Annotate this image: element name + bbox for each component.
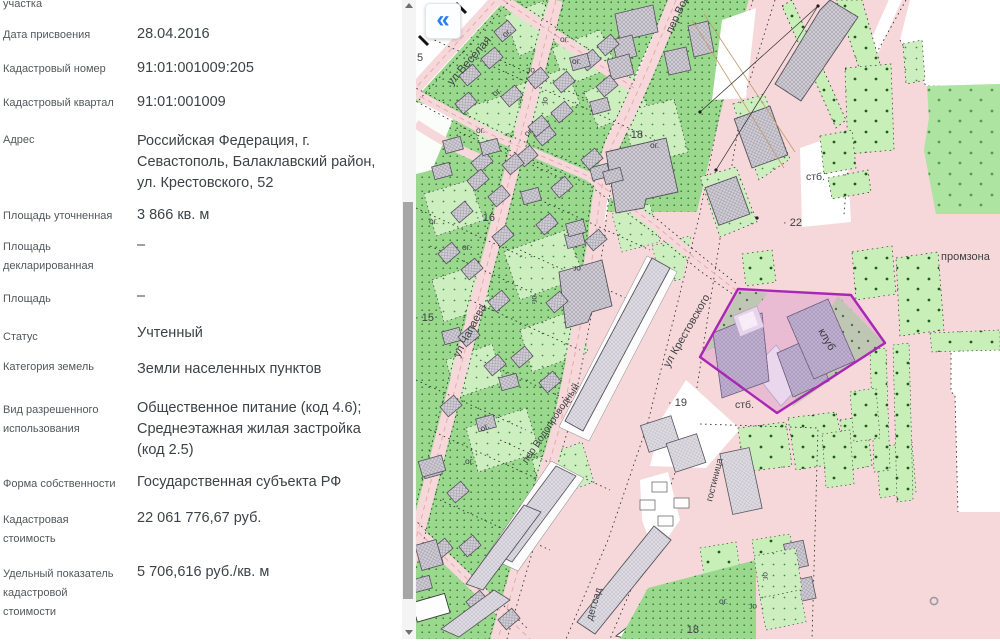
svg-text:ог.: ог. xyxy=(748,602,757,612)
svg-text:ог.: ог. xyxy=(719,596,728,606)
svg-text:ог.: ог. xyxy=(462,242,471,252)
svg-text:ог.: ог. xyxy=(530,295,540,304)
svg-text:· 18: · 18 xyxy=(624,129,643,141)
svg-text:ог.: ог. xyxy=(560,34,569,44)
svg-text:ог.: ог. xyxy=(476,125,485,135)
svg-text:· 22: · 22 xyxy=(783,217,802,229)
svg-text:ог.: ог. xyxy=(650,140,659,150)
svg-text:ог.: ог. xyxy=(761,572,771,581)
svg-text:ог.: ог. xyxy=(465,456,474,466)
svg-text:ог.: ог. xyxy=(572,56,581,66)
svg-text:· 18: · 18 xyxy=(680,624,699,636)
svg-text:· 19: · 19 xyxy=(668,397,687,409)
svg-text:ог.: ог. xyxy=(541,97,551,106)
svg-text:стб.: стб. xyxy=(806,171,825,183)
svg-text:промзона: промзона xyxy=(941,251,991,263)
svg-text:· 16: · 16 xyxy=(476,212,495,224)
svg-text:5: 5 xyxy=(417,52,423,64)
svg-text:ог.: ог. xyxy=(429,216,438,226)
svg-text:· 15: · 15 xyxy=(416,312,434,324)
svg-text:ог.: ог. xyxy=(572,264,581,274)
svg-text:ог.: ог. xyxy=(526,66,535,76)
svg-text:стб.: стб. xyxy=(735,399,754,411)
